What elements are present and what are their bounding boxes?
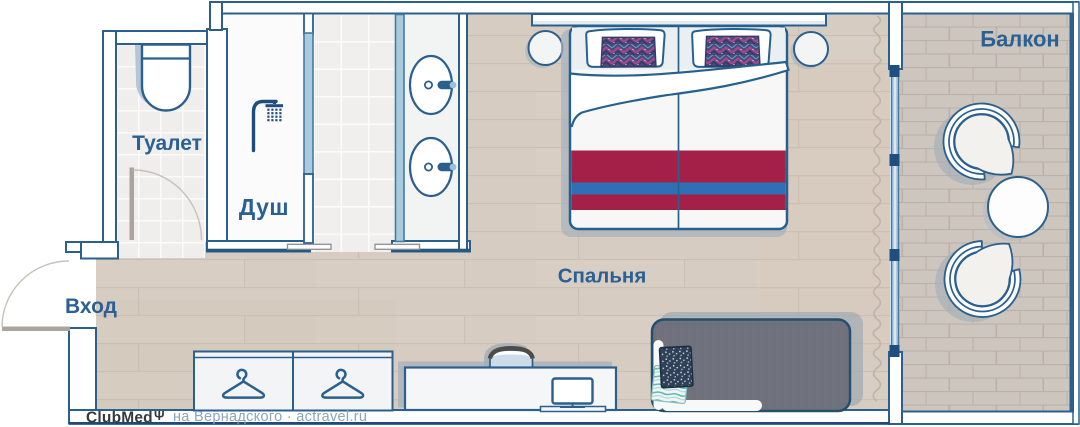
svg-text:Вход: Вход [65, 295, 117, 318]
svg-text:Туалет: Туалет [132, 132, 202, 155]
svg-text:Балкон: Балкон [980, 27, 1059, 52]
svg-text:на Вернадского · actravel.ru: на Вернадского · actravel.ru [173, 409, 367, 425]
svg-text:Ψ: Ψ [154, 408, 165, 423]
svg-text:Спальня: Спальня [558, 265, 647, 288]
svg-text:ClubMed: ClubMed [86, 410, 153, 427]
svg-text:Душ: Душ [239, 194, 289, 220]
